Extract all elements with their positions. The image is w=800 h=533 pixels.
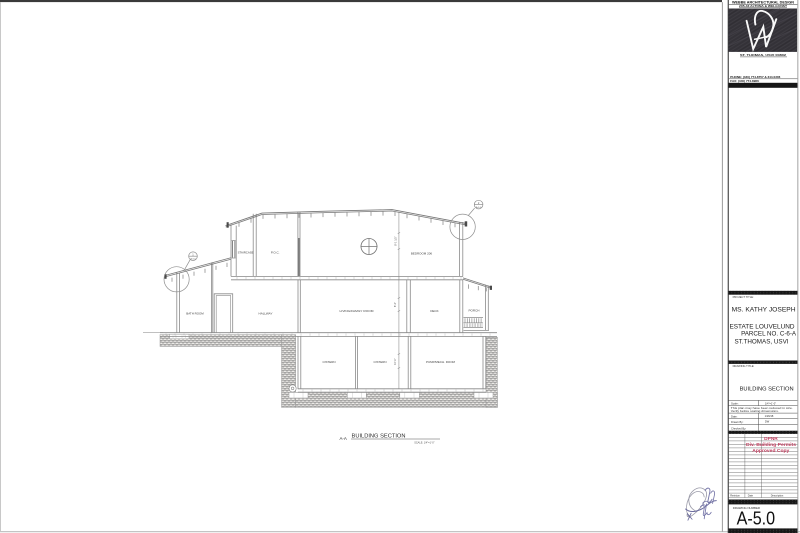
svg-text:Scale:: Scale: — [731, 401, 739, 405]
svg-text:BEDROOM 206: BEDROOM 206 — [411, 251, 433, 255]
svg-text:WEBBE ARCHITECTURAL DESIGN: WEBBE ARCHITECTURAL DESIGN — [732, 1, 795, 5]
svg-text:8'-0": 8'-0" — [393, 302, 397, 307]
svg-text:Verify before scaling dimensio: Verify before scaling dimensions. — [731, 410, 779, 413]
svg-text:HALLWAY: HALLWAY — [259, 312, 273, 316]
svg-text:10'-0": 10'-0" — [393, 358, 397, 365]
svg-text:DW: DW — [765, 420, 770, 424]
svg-text:2: 2 — [478, 201, 480, 205]
svg-text:MS. KATHY JOSEPH: MS. KATHY JOSEPH — [732, 306, 796, 313]
svg-text:1/29/18: 1/29/18 — [765, 414, 774, 418]
svg-text:Approved Copy: Approved Copy — [752, 448, 790, 453]
svg-text:PUMP/MECH. ROOM: PUMP/MECH. ROOM — [426, 360, 455, 364]
svg-text:Drawn By:: Drawn By: — [731, 420, 744, 424]
svg-text:DECK: DECK — [430, 309, 438, 313]
svg-text:ST.THOMAS, USVI: ST.THOMAS, USVI — [735, 339, 789, 346]
svg-text:BUILDING SECTION: BUILDING SECTION — [740, 387, 794, 393]
svg-text:A-5.0: A-5.0 — [190, 257, 196, 260]
svg-text:1: 1 — [192, 252, 194, 256]
svg-text:A-5.0: A-5.0 — [737, 508, 776, 528]
svg-text:8'-1 1/2": 8'-1 1/2" — [393, 236, 397, 246]
svg-text:LIVING/FAMILY ROOM: LIVING/FAMILY ROOM — [340, 309, 375, 313]
svg-text:PORCH: PORCH — [469, 308, 480, 312]
svg-text:FAX: (340) 774-8966: FAX: (340) 774-8966 — [730, 79, 759, 83]
svg-text:P.O.C.: P.O.C. — [271, 250, 280, 254]
svg-text:1/4"=1'-0": 1/4"=1'-0" — [765, 401, 776, 405]
svg-text:Div. Building Permits: Div. Building Permits — [746, 442, 797, 447]
svg-text:DRAWING TITLE:: DRAWING TITLE: — [733, 364, 755, 368]
svg-text:ST. THOMAS, USVI 00802: ST. THOMAS, USVI 00802 — [740, 53, 786, 57]
svg-text:Date: Date — [748, 494, 754, 497]
svg-text:A-5.0: A-5.0 — [476, 206, 482, 209]
svg-text:SCALE: 1/4"=1'-0": SCALE: 1/4"=1'-0" — [414, 441, 435, 444]
svg-text:PROJECT TITLE:: PROJECT TITLE: — [733, 295, 755, 299]
svg-text:DPNR: DPNR — [764, 436, 778, 441]
svg-text:BATH ROOM: BATH ROOM — [186, 312, 204, 316]
svg-text:CISTERN: CISTERN — [374, 360, 387, 364]
svg-text:Description: Description — [771, 494, 784, 497]
svg-text:PARCEL NO. C-6-A: PARCEL NO. C-6-A — [741, 330, 797, 337]
svg-text:STAIRCASE: STAIRCASE — [238, 250, 254, 254]
svg-text:Date:: Date: — [731, 414, 738, 418]
svg-text:Revision: Revision — [730, 494, 740, 497]
svg-text:CISTERN: CISTERN — [323, 360, 336, 364]
svg-text:A-A: A-A — [340, 436, 347, 441]
svg-text:Checked By:: Checked By: — [731, 426, 746, 430]
